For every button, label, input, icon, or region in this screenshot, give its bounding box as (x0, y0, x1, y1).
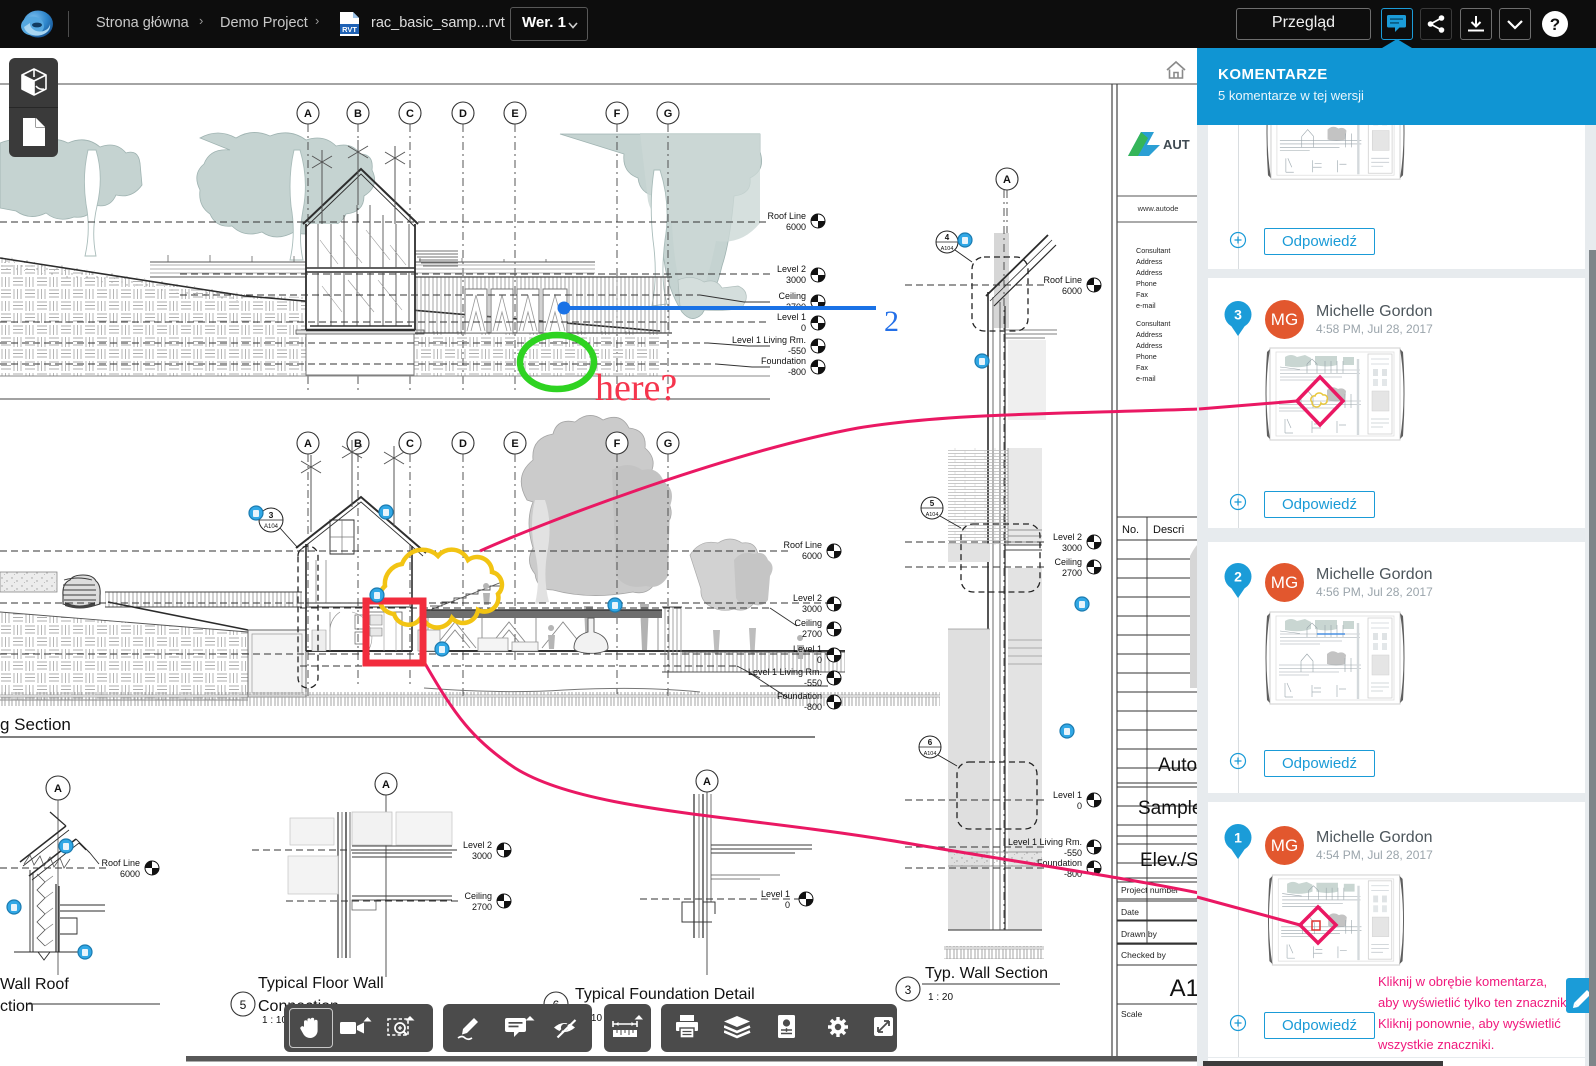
svg-text:here?: here? (595, 367, 677, 409)
svg-text:-550: -550 (788, 346, 806, 356)
svg-text:RVT: RVT (342, 25, 357, 34)
svg-text:Level 1 Living Rm.: Level 1 Living Rm. (748, 667, 822, 677)
svg-text:Foundation: Foundation (761, 356, 806, 366)
svg-text:Fax: Fax (1136, 363, 1148, 372)
svg-text:3000: 3000 (802, 604, 822, 614)
svg-text:e-mail: e-mail (1136, 374, 1156, 383)
svg-text:Consultant: Consultant (1136, 319, 1170, 328)
svg-text:G: G (664, 438, 673, 450)
svg-text:0: 0 (801, 323, 806, 333)
svg-text:No.: No. (1122, 524, 1139, 536)
svg-text:A104: A104 (264, 524, 279, 530)
svg-text:Typical Floor Wall: Typical Floor Wall (258, 975, 384, 992)
svg-text:2700: 2700 (472, 902, 492, 912)
svg-text:?: ? (1550, 15, 1560, 34)
svg-text:3000: 3000 (1062, 543, 1082, 553)
svg-text:A104: A104 (926, 512, 939, 518)
svg-text:G: G (664, 108, 673, 120)
svg-text:2700: 2700 (1062, 568, 1082, 578)
svg-text:A1: A1 (1170, 975, 1199, 1002)
svg-text:Roof Line: Roof Line (783, 540, 822, 550)
svg-text:A104: A104 (924, 751, 937, 757)
svg-text:Typical Foundation Detail: Typical Foundation Detail (575, 986, 755, 1003)
svg-text:Address: Address (1136, 268, 1163, 277)
svg-text:-800: -800 (804, 702, 822, 712)
svg-text:Level 2: Level 2 (777, 264, 806, 274)
svg-text:g Section: g Section (0, 715, 71, 734)
svg-text:F: F (614, 438, 621, 450)
svg-text:Ceiling: Ceiling (464, 891, 492, 901)
svg-text:Address: Address (1136, 330, 1163, 339)
svg-text:1 : 10: 1 : 10 (262, 1015, 287, 1026)
svg-text:0: 0 (785, 900, 790, 910)
svg-text:E: E (511, 108, 518, 120)
svg-text:-800: -800 (788, 367, 806, 377)
svg-text:1 : 10: 1 : 10 (577, 1013, 602, 1024)
svg-text:A: A (304, 108, 312, 120)
svg-text:3: 3 (905, 983, 912, 997)
svg-text:D: D (459, 108, 467, 120)
svg-text:Roof Line: Roof Line (1043, 275, 1082, 285)
svg-text:Phone: Phone (1136, 352, 1157, 361)
svg-text:Drawn by: Drawn by (1121, 929, 1158, 939)
svg-text:Ceiling: Ceiling (778, 291, 806, 301)
svg-text:E: E (511, 438, 518, 450)
svg-text:Checked by: Checked by (1121, 950, 1167, 960)
svg-text:Level 2: Level 2 (793, 593, 822, 603)
svg-text:Level 1 Living Rm.: Level 1 Living Rm. (732, 335, 806, 345)
svg-text:C: C (406, 438, 414, 450)
svg-text:A: A (304, 438, 312, 450)
svg-text:2700: 2700 (802, 629, 822, 639)
svg-text:A104: A104 (941, 246, 954, 252)
svg-text:3000: 3000 (786, 275, 806, 285)
svg-text:e-mail: e-mail (1136, 301, 1156, 310)
svg-text:Auto: Auto (1158, 755, 1197, 776)
svg-text:A: A (382, 779, 390, 791)
svg-text:5: 5 (240, 998, 247, 1012)
svg-text:6: 6 (553, 998, 560, 1012)
svg-text:D: D (459, 438, 467, 450)
svg-text:6000: 6000 (802, 551, 822, 561)
svg-text:Fax: Fax (1136, 290, 1148, 299)
svg-text:Level 1: Level 1 (1053, 790, 1082, 800)
svg-text:A: A (703, 776, 711, 788)
svg-text:6000: 6000 (1062, 286, 1082, 296)
svg-text:A: A (1003, 174, 1011, 186)
svg-text:4: 4 (945, 233, 950, 242)
svg-text:ction: ction (0, 998, 34, 1015)
svg-text:Scale: Scale (1121, 1009, 1143, 1019)
svg-text:Roof Line: Roof Line (101, 858, 140, 868)
svg-text:Foundation: Foundation (777, 691, 822, 701)
svg-text:www.autode: www.autode (1137, 204, 1179, 213)
svg-text:Address: Address (1136, 257, 1163, 266)
svg-text:1 : 20: 1 : 20 (928, 992, 953, 1003)
svg-text:-550: -550 (804, 678, 822, 688)
svg-text:Phone: Phone (1136, 279, 1157, 288)
svg-text:Ceiling: Ceiling (794, 618, 822, 628)
svg-text:Typ. Wall Section: Typ. Wall Section (925, 965, 1048, 982)
svg-text:6: 6 (928, 738, 933, 747)
svg-text:2: 2 (884, 305, 899, 338)
svg-text:AUT: AUT (1163, 137, 1190, 152)
svg-text:1: 1 (1234, 830, 1242, 846)
svg-text:F: F (614, 108, 621, 120)
svg-text:5: 5 (930, 499, 935, 508)
svg-text:Connection: Connection (258, 998, 339, 1015)
svg-text:A: A (54, 783, 62, 795)
svg-text:Level 1: Level 1 (761, 889, 790, 899)
svg-text:Level 2: Level 2 (1053, 532, 1082, 542)
svg-text:C: C (406, 108, 414, 120)
svg-text:Address: Address (1136, 341, 1163, 350)
svg-text:Sample: Sample (1138, 798, 1202, 819)
svg-text:Ceiling: Ceiling (1054, 557, 1082, 567)
svg-text:6000: 6000 (120, 869, 140, 879)
svg-text:Descri: Descri (1153, 524, 1184, 536)
svg-text:B: B (354, 108, 362, 120)
svg-text:Level 2: Level 2 (463, 840, 492, 850)
svg-text:0: 0 (817, 655, 822, 665)
svg-text:-550: -550 (1064, 848, 1082, 858)
svg-text:Level 1: Level 1 (793, 644, 822, 654)
svg-text:3: 3 (269, 510, 274, 520)
svg-text:Roof Line: Roof Line (767, 211, 806, 221)
svg-text:Date: Date (1121, 907, 1139, 917)
svg-text:3: 3 (1234, 307, 1242, 323)
svg-text:6000: 6000 (786, 222, 806, 232)
svg-text:0: 0 (1077, 801, 1082, 811)
svg-text:2: 2 (1234, 569, 1242, 585)
svg-text:Level 1: Level 1 (777, 312, 806, 322)
svg-text:3000: 3000 (472, 851, 492, 861)
svg-text:Consultant: Consultant (1136, 246, 1170, 255)
svg-text:Level 1 Living Rm.: Level 1 Living Rm. (1008, 837, 1082, 847)
svg-text:Wall Roof: Wall Roof (0, 976, 69, 993)
